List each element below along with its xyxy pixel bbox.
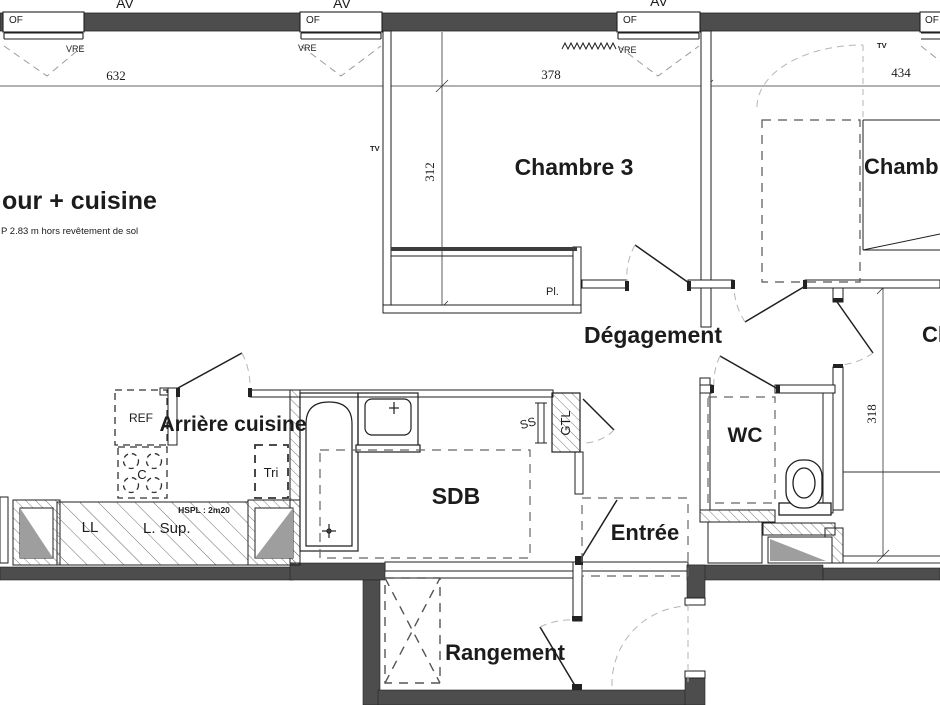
dim-434: 434 bbox=[891, 65, 911, 80]
room-label-degagement: Dégagement bbox=[584, 322, 722, 348]
chambre2-furniture bbox=[863, 120, 940, 250]
av-label-1: AV bbox=[116, 0, 134, 11]
floor-plan-page: { "rooms": { "sejour": "our + cuisine", … bbox=[0, 0, 940, 705]
gtl-label: GTL bbox=[558, 410, 573, 435]
fridge-label: REF bbox=[129, 411, 153, 425]
tv-marker-chambre2: TV bbox=[877, 41, 887, 50]
door-swing-arcs bbox=[242, 45, 873, 686]
of-label-3: OF bbox=[623, 15, 637, 26]
towel-radiator bbox=[535, 403, 547, 443]
tv-marker-chambre3: TV bbox=[370, 144, 380, 153]
chambre1-furniture bbox=[843, 472, 940, 563]
room-label-wc: WC bbox=[728, 424, 763, 447]
structural-walls bbox=[0, 563, 940, 705]
of-label-1: OF bbox=[9, 15, 23, 26]
room-label-chambre2: Chambre bbox=[864, 154, 940, 179]
room-label-chambre3: Chambre 3 bbox=[515, 154, 634, 180]
dim-632: 632 bbox=[106, 68, 126, 83]
of-label-4: OF bbox=[925, 15, 939, 26]
closet-label-pl: Pl. bbox=[546, 286, 559, 298]
vre-label-2: VRE bbox=[298, 43, 317, 53]
vre-label-3: VRE bbox=[618, 45, 637, 55]
bathtub bbox=[300, 393, 358, 551]
radiator-zigzag bbox=[562, 43, 616, 49]
dim-378: 378 bbox=[541, 67, 561, 82]
av-label-3: AV bbox=[650, 0, 668, 9]
room-label-rangement: Rangement bbox=[445, 640, 565, 665]
ll-label: LL bbox=[82, 519, 99, 536]
closet-chambre3 bbox=[391, 249, 577, 256]
wc-dashed-zone bbox=[708, 397, 775, 503]
washbasin bbox=[356, 393, 420, 452]
room-label-sejour: our + cuisine bbox=[2, 187, 157, 215]
chambre2-dressing-zone bbox=[762, 120, 860, 282]
ss-label: SS bbox=[518, 414, 537, 432]
lsup-label: L. Sup. bbox=[143, 520, 191, 537]
dim-312: 312 bbox=[422, 162, 437, 182]
cooktop-label: C bbox=[137, 467, 146, 482]
wc-lower-structures bbox=[700, 510, 835, 563]
av-label-2: AV bbox=[333, 0, 351, 11]
room-label-entree: Entrée bbox=[611, 520, 679, 545]
exterior-wall-top bbox=[0, 13, 920, 31]
door-jambs bbox=[176, 280, 843, 690]
of-label-2: OF bbox=[306, 15, 320, 26]
hspl-label: HSPL : 2m20 bbox=[178, 505, 230, 515]
tri-label: Tri bbox=[264, 465, 279, 480]
window-opening-marks bbox=[4, 46, 940, 76]
dim-318: 318 bbox=[864, 404, 879, 424]
vre-label-1: VRE bbox=[66, 44, 85, 54]
rangement-shelf-box bbox=[385, 578, 440, 683]
room-label-arriere-cuisine: Arrière cuisine bbox=[159, 413, 306, 436]
room-note-sejour: P 2.83 m hors revêtement de sol bbox=[1, 226, 138, 237]
floor-plan-svg: AV AV AV OF OF OF OF VRE VRE VRE 632 378… bbox=[0, 0, 940, 705]
room-label-sdb: SDB bbox=[432, 483, 481, 509]
room-label-chambre1: Ch bbox=[922, 322, 940, 347]
